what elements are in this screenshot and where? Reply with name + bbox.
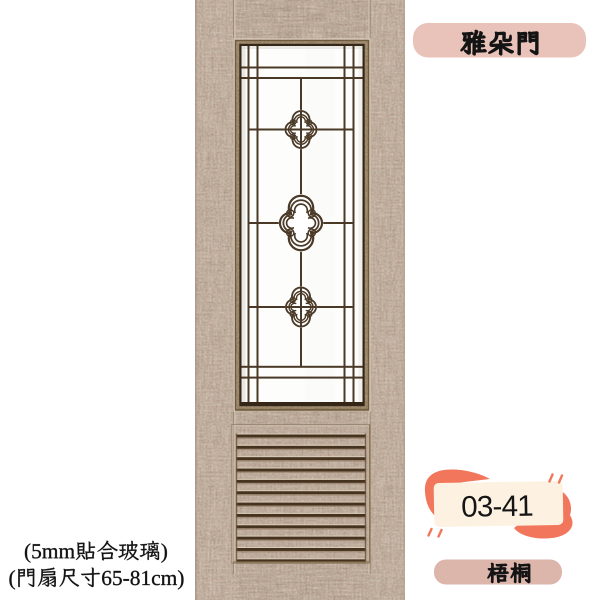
svg-text:03-41: 03-41 [461,490,534,524]
